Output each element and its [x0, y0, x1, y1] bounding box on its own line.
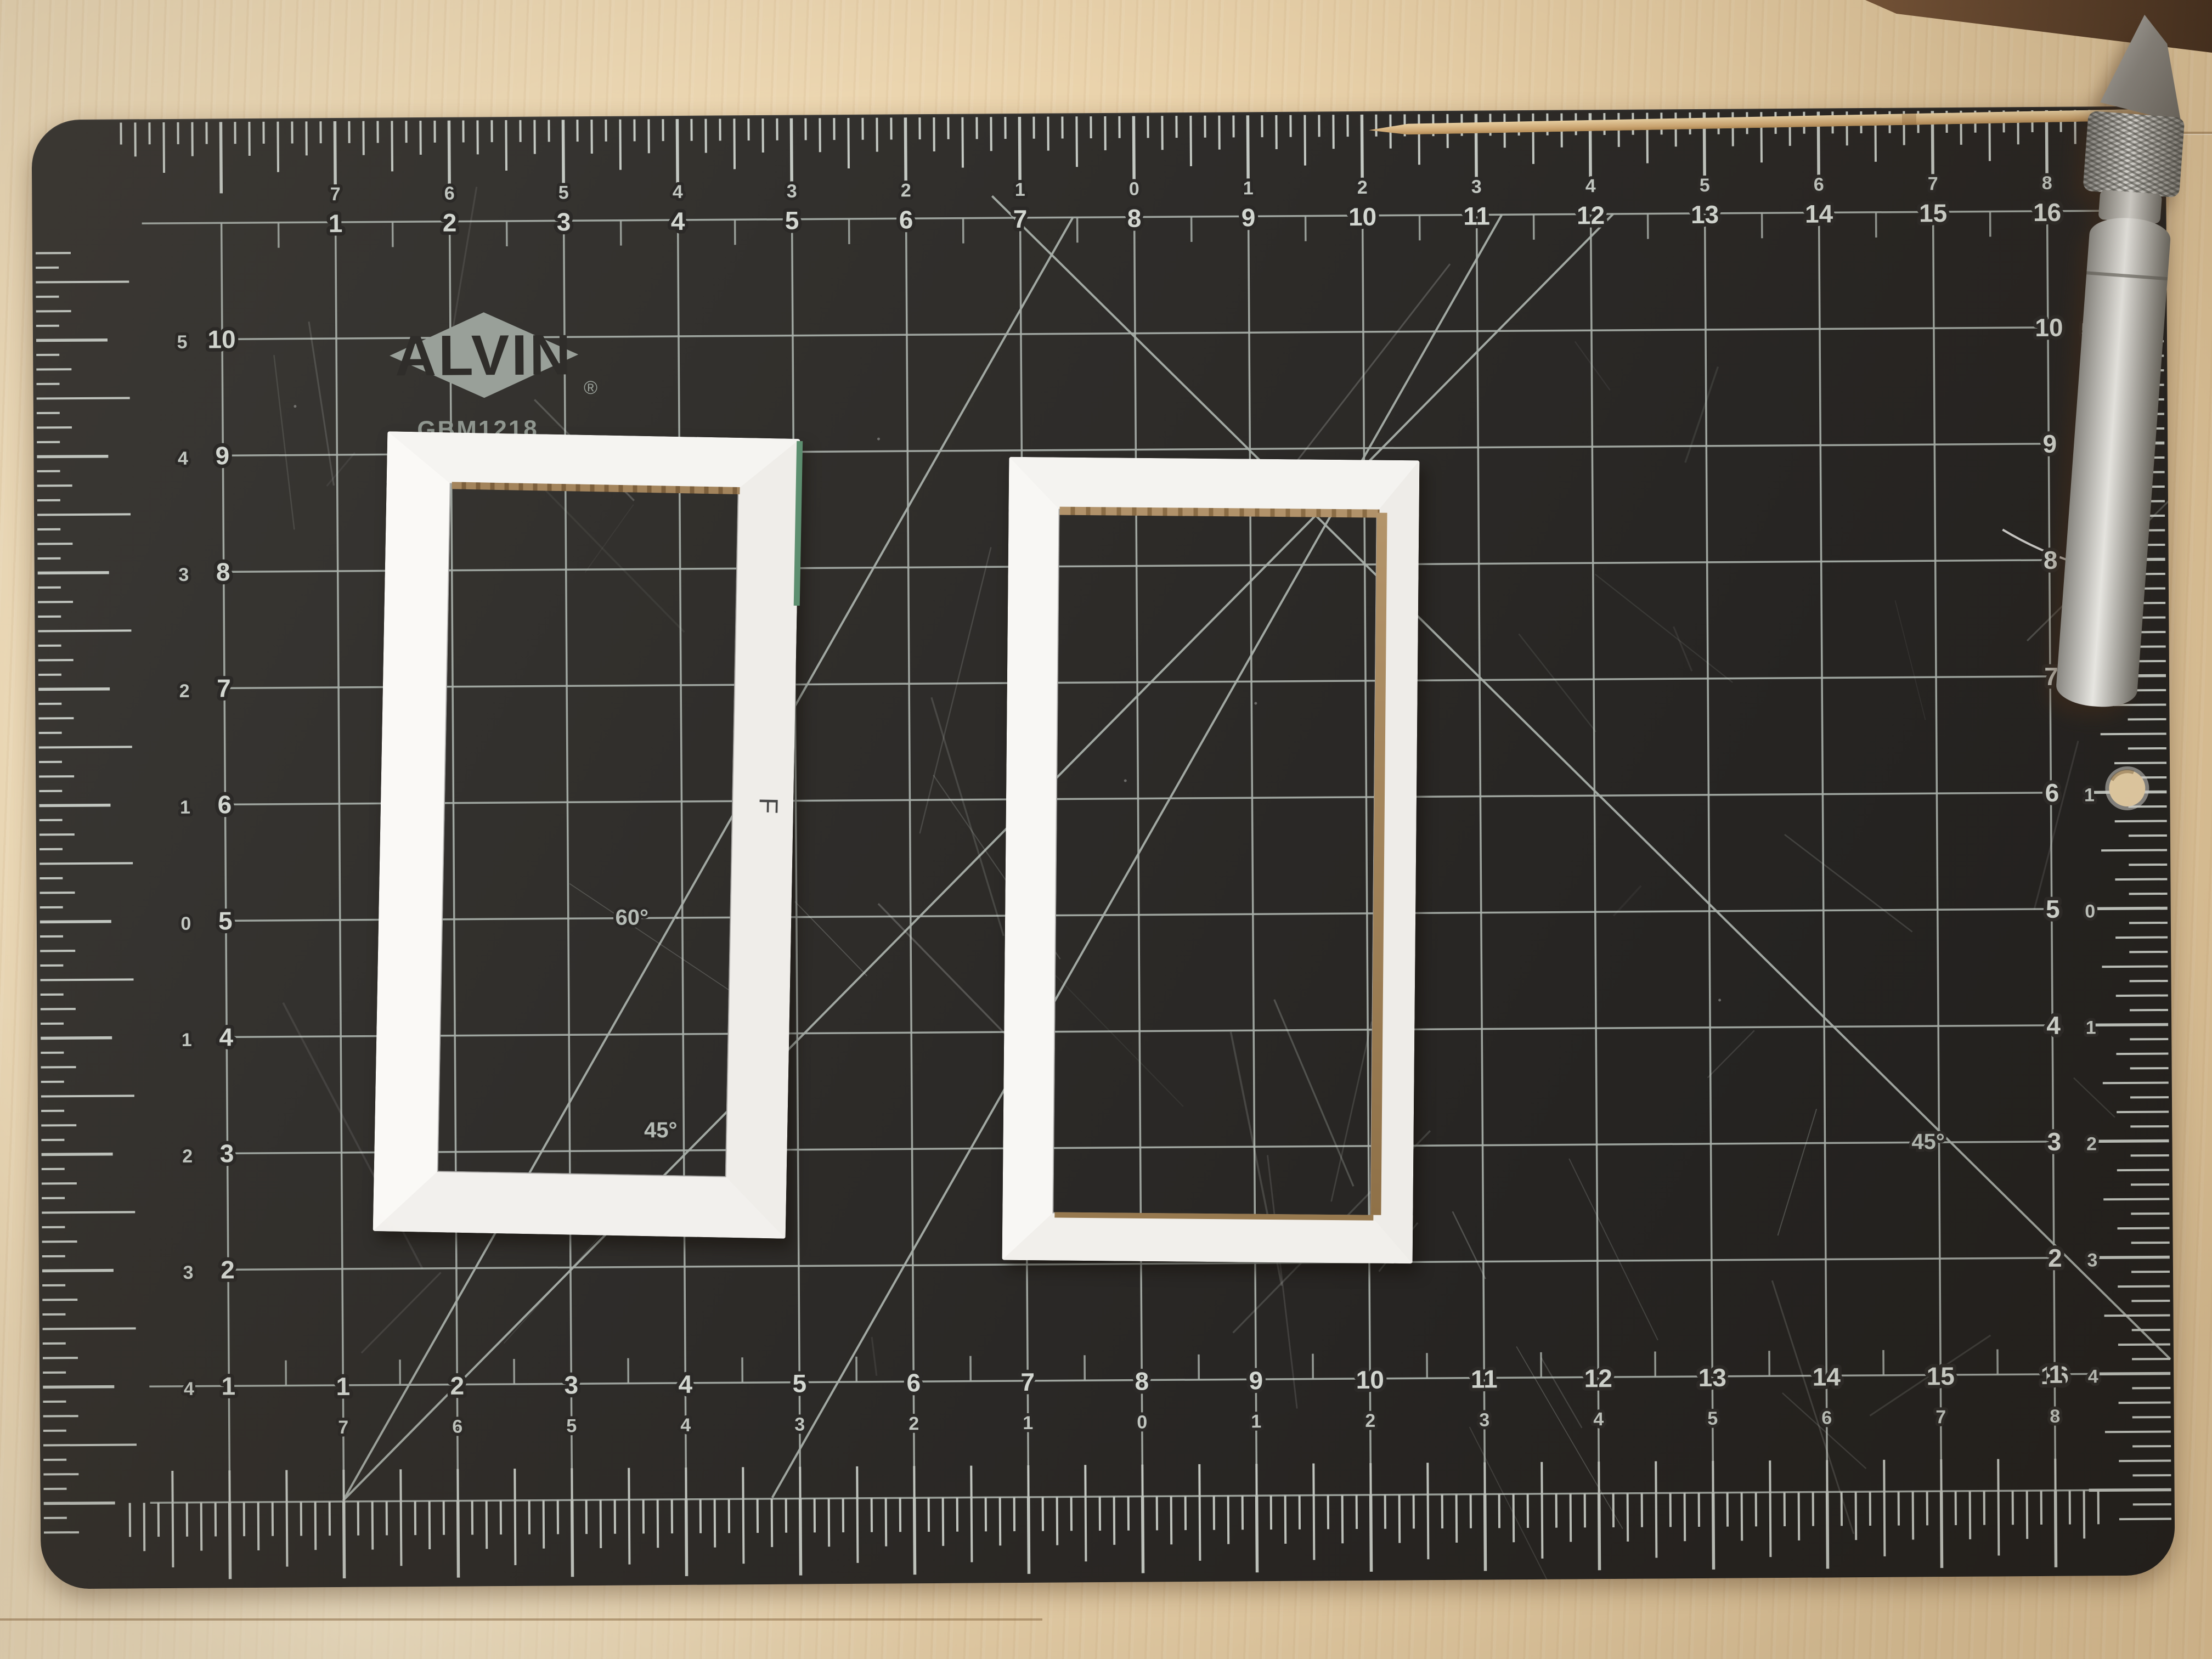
ruler-number: 2: [1357, 177, 1368, 198]
ruler-number: 1: [180, 797, 190, 818]
ruler-number: 3: [2087, 1250, 2097, 1271]
ruler-number: 5: [566, 1415, 577, 1436]
ruler-number: 7: [1013, 205, 1028, 233]
ruler-number: 1: [2086, 1017, 2096, 1038]
ruler-number: 8: [1127, 204, 1142, 233]
toothpick-notch: [1902, 114, 1916, 125]
mat-frame-left: F: [373, 431, 800, 1239]
ruler-number: 1: [2049, 1360, 2063, 1389]
ruler-number: 1: [221, 1372, 235, 1400]
ruler-number: 16: [2033, 198, 2062, 227]
ruler-number: 6: [444, 183, 455, 204]
ruler-number: 1: [2084, 785, 2095, 805]
photo-scene: 1726354453627180911021131241351461571681…: [0, 0, 2212, 1659]
ruler-number: 2: [179, 681, 190, 702]
ruler-number: 1: [1015, 179, 1025, 200]
ruler-number: 1: [1251, 1411, 1261, 1432]
ruler-number: 1: [336, 1372, 350, 1401]
ruler-number: 5: [2046, 895, 2060, 923]
ruler-number: 2: [443, 208, 457, 237]
ruler-number: 10: [207, 325, 236, 353]
ruler-number: 14: [1813, 1362, 1841, 1391]
ruler-number: 6: [1821, 1407, 1832, 1428]
ruler-number: 5: [177, 332, 187, 353]
frame-right-opening-edge: [1052, 509, 1377, 1216]
ruler-number: 1: [182, 1030, 192, 1051]
ruler-number: 9: [215, 441, 229, 470]
ruler-number: 2: [1365, 1410, 1375, 1431]
registered-mark: ®: [584, 377, 597, 398]
ruler-number: 3: [183, 1262, 193, 1283]
ruler-number: 3: [794, 1414, 805, 1435]
ruler-number: 12: [1577, 201, 1605, 229]
ruler-number: 7: [1936, 1407, 1946, 1427]
ruler-number: 2: [2086, 1133, 2097, 1154]
ruler-number: 4: [673, 182, 683, 202]
alvin-logo-text: ALVIN: [395, 323, 573, 388]
knife-blade: [2099, 12, 2189, 123]
frame-left-opening-edge: [437, 483, 739, 1177]
ruler-number: 0: [1129, 179, 1139, 200]
angle-label-45-right: 45°: [1911, 1130, 1945, 1154]
ruler-number: 5: [558, 182, 569, 203]
ruler-number: 4: [1585, 176, 1596, 196]
ruler-number: 3: [564, 1370, 578, 1399]
knife-handle-seam: [2086, 271, 2168, 280]
ruler-number: 6: [217, 790, 232, 819]
ruler-number: 2: [909, 1413, 919, 1434]
ruler-number: 7: [1020, 1368, 1035, 1396]
ruler-number: 9: [1249, 1366, 1263, 1395]
ruler-number: 5: [1707, 1408, 1718, 1429]
ruler-number: 3: [2047, 1127, 2062, 1156]
ruler-number: 2: [450, 1372, 464, 1400]
ruler-number: 6: [906, 1368, 921, 1397]
ruler-number: 0: [1137, 1412, 1147, 1433]
ruler-number: 3: [1479, 1409, 1489, 1430]
ruler-number: 4: [178, 448, 188, 469]
ruler-number: 7: [330, 184, 341, 205]
ruler-number: 4: [184, 1379, 194, 1400]
ruler-number: 6: [2045, 778, 2059, 807]
mat-frame-right: [1002, 457, 1420, 1263]
ruler-number: 3: [787, 181, 797, 202]
ruler-number: 9: [2042, 430, 2057, 458]
ruler-number: 4: [678, 1370, 692, 1398]
ruler-number: 13: [1699, 1363, 1727, 1392]
knife-handle: [2055, 216, 2172, 709]
ruler-number: 5: [785, 206, 799, 235]
ruler-number: 8: [1135, 1367, 1149, 1395]
ruler-number: 10: [1356, 1365, 1385, 1394]
mat-hang-hole: [2105, 766, 2149, 811]
ruler-number: 1: [329, 209, 343, 238]
ruler-number: 11: [1463, 201, 1490, 230]
ruler-number: 7: [338, 1417, 348, 1438]
ruler-number: 1: [1023, 1413, 1033, 1434]
ruler-number: 3: [220, 1139, 234, 1167]
ruler-number: 15: [1926, 1362, 1955, 1390]
ruler-number: 6: [899, 205, 913, 234]
ruler-number: 10: [1348, 202, 1377, 231]
ruler-number: 5: [218, 906, 233, 935]
ruler-number: 3: [1471, 177, 1482, 198]
ruler-number: 6: [1814, 174, 1824, 195]
ruler-number: 14: [1805, 199, 1833, 228]
ruler-number: 4: [671, 207, 685, 235]
ruler-number: 2: [221, 1255, 235, 1284]
ruler-number: 4: [2046, 1011, 2061, 1040]
ruler-number: 8: [2042, 173, 2052, 194]
ruler-number: 15: [1919, 199, 1948, 227]
ruler-number: 4: [2088, 1366, 2098, 1387]
ruler-number: 2: [2048, 1244, 2062, 1272]
ruler-number: 7: [217, 674, 231, 702]
ruler-number: 10: [2035, 313, 2063, 342]
ruler-number: 5: [1700, 175, 1710, 196]
frame-left-letter: F: [753, 789, 783, 822]
ruler-number: 13: [1691, 200, 1719, 229]
ruler-number: 5: [792, 1369, 806, 1398]
ruler-number: 7: [1928, 173, 1938, 194]
ruler-number: 4: [1593, 1409, 1604, 1430]
ruler-number: 9: [1242, 203, 1256, 232]
ruler-number: 2: [901, 180, 911, 201]
ruler-number: 4: [680, 1415, 691, 1436]
ruler-number: 3: [557, 207, 571, 236]
ruler-number: 12: [1584, 1364, 1613, 1392]
ruler-number: 8: [216, 557, 230, 586]
ruler-number: 3: [178, 565, 189, 585]
ruler-number: 8: [2050, 1406, 2060, 1427]
ruler-number: 2: [182, 1146, 193, 1167]
ruler-number: 0: [180, 913, 191, 934]
knife-knurled-collar: [2083, 111, 2185, 198]
ruler-number: 6: [452, 1417, 462, 1437]
ruler-number: 11: [1471, 1364, 1498, 1393]
ruler-number: 4: [219, 1023, 233, 1051]
ruler-number: 0: [2085, 901, 2095, 922]
ruler-number: 1: [1243, 178, 1254, 199]
desk-board-seam-bottom: [0, 1618, 1042, 1621]
